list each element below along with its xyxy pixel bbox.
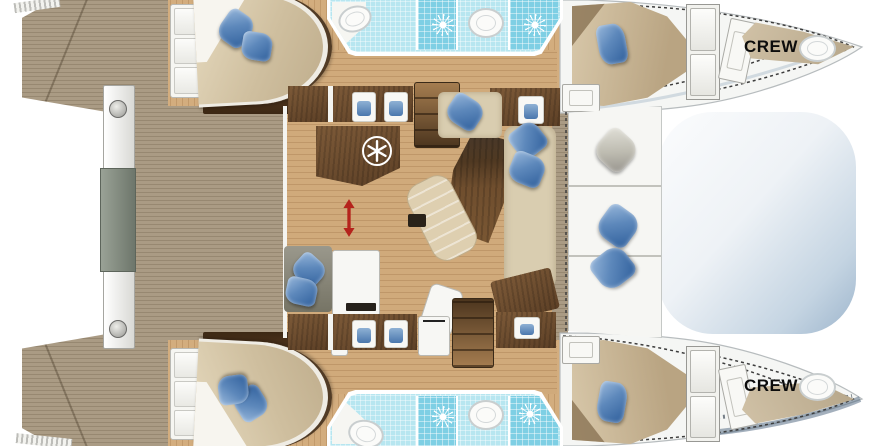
counter-sink bbox=[514, 317, 540, 339]
red-double-arrow-icon bbox=[342, 198, 356, 238]
crew-label-text: CREW bbox=[744, 376, 798, 395]
beam-fitting-bottom bbox=[109, 320, 127, 338]
trampoline bbox=[658, 112, 856, 334]
desk-panel bbox=[346, 303, 376, 311]
appliance-handle bbox=[423, 320, 445, 322]
wardrobe bbox=[686, 346, 720, 442]
crew-label-port: CREW bbox=[744, 376, 798, 396]
cabin-door-bottom bbox=[562, 336, 600, 364]
shower-sun-icon bbox=[432, 406, 454, 428]
floor-hatch bbox=[408, 214, 426, 227]
bath-wall bbox=[416, 396, 418, 446]
toilet bbox=[468, 8, 504, 38]
toilet bbox=[468, 400, 504, 430]
appliance-module bbox=[418, 316, 450, 356]
snowflake-icon bbox=[362, 136, 392, 166]
galley-sink bbox=[352, 92, 376, 122]
shower-sun-icon bbox=[524, 14, 546, 36]
catamaran-floor-plan: CREW CREW bbox=[0, 0, 890, 446]
beam-fitting-top bbox=[109, 100, 127, 118]
galley-counter-aft bbox=[288, 314, 328, 350]
shower-sun-icon bbox=[519, 403, 541, 425]
bath-wall bbox=[508, 396, 510, 446]
counter-sink bbox=[518, 96, 544, 124]
crew-hatch bbox=[799, 373, 836, 401]
bath-wall bbox=[456, 0, 458, 50]
galley-sink bbox=[352, 320, 376, 348]
companionway-steps-bottom bbox=[452, 298, 494, 368]
galley-sink bbox=[384, 320, 408, 348]
aft-beam-pad bbox=[100, 168, 136, 272]
crew-label-starboard: CREW bbox=[744, 37, 798, 57]
bath-wall bbox=[416, 0, 418, 50]
shower-sun-icon bbox=[432, 14, 454, 36]
crew-hatch bbox=[799, 35, 836, 62]
galley-counter-aft bbox=[288, 86, 328, 122]
bath-wall bbox=[456, 396, 458, 446]
crew-label-text: CREW bbox=[744, 37, 798, 56]
wardrobe bbox=[686, 4, 720, 100]
bath-wall bbox=[508, 0, 510, 50]
galley-sink bbox=[384, 92, 408, 122]
cabin-door-top bbox=[562, 84, 600, 112]
cushion-divider bbox=[569, 185, 661, 187]
